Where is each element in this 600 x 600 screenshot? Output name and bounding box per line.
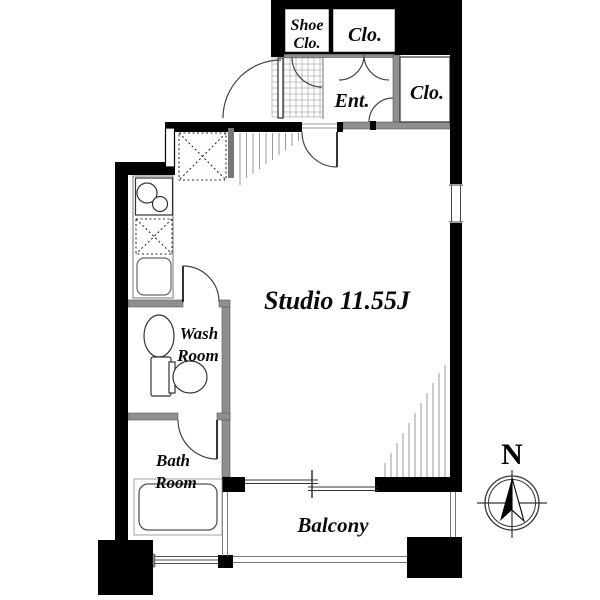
floor-plan-drawing: N Shoe Clo. Clo. Ent. Clo. Studio 11.55J… xyxy=(0,0,600,600)
right-wall-window xyxy=(449,184,463,223)
burner-icon xyxy=(153,197,168,212)
shoe-closet-label-line1: Shoe xyxy=(291,17,324,34)
compass-north-label: N xyxy=(501,438,523,471)
wash-room-label-line1: Wash xyxy=(180,324,218,343)
entrance-label: Ent. xyxy=(333,90,369,112)
closet-top-label: Clo. xyxy=(348,24,382,46)
bath-room-label-line2: Room xyxy=(154,473,197,492)
wash-room-label-line2: Room xyxy=(176,346,219,365)
balcony-corner-block xyxy=(218,555,233,568)
bath-room-label-line1: Bath xyxy=(155,451,190,470)
wall-connector xyxy=(166,128,175,167)
shoe-closet-label-line2: Clo. xyxy=(293,35,320,52)
sink-icon xyxy=(137,258,171,295)
pillar-southeast xyxy=(407,537,462,578)
kitchen-counter xyxy=(133,176,173,298)
pillar-southwest xyxy=(98,540,153,595)
balcony-label: Balcony xyxy=(296,513,369,537)
studio-label: Studio 11.55J xyxy=(264,286,411,315)
floor-plan: N Shoe Clo. Clo. Ent. Clo. Studio 11.55J… xyxy=(0,0,600,600)
closet-right-label: Clo. xyxy=(410,82,444,104)
wash-basin-icon xyxy=(144,315,174,357)
